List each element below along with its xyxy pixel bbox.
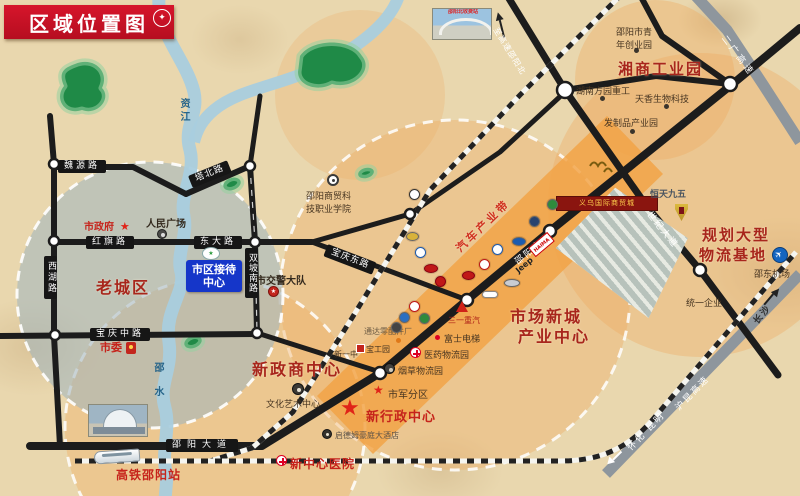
airport-icon: ✈ bbox=[772, 247, 788, 263]
poi-gaotie: 高铁邵阳站 bbox=[116, 466, 181, 483]
project-name: 义乌国际商贸城 bbox=[579, 199, 635, 207]
baogong-icon bbox=[356, 344, 365, 353]
poi-tianxiang: 天香生物科技 bbox=[635, 92, 689, 105]
renmin-icon bbox=[157, 229, 167, 239]
poi-chuangye-dot bbox=[634, 48, 639, 53]
road-label-shaoyang-dadao: 邵阳大道 bbox=[166, 439, 238, 452]
area-wuliu-line1: 规划大型 bbox=[702, 224, 770, 245]
poi-yiyao: 医药物流园 bbox=[424, 348, 469, 361]
poi-jiaojing: 市交警大队 bbox=[256, 272, 306, 287]
junfenqu-star-icon: ★ bbox=[373, 384, 384, 396]
poi-tongda-dot bbox=[396, 338, 401, 343]
project-banner: 义乌国际商贸城 bbox=[556, 196, 658, 211]
area-laochengqu: 老城区 bbox=[96, 274, 150, 298]
car-brand-logo bbox=[479, 259, 490, 270]
poi-junfenqu: 市军分区 bbox=[388, 386, 428, 401]
poi-hospital: 新中心医院 bbox=[290, 455, 355, 472]
car-brand-logo bbox=[399, 312, 410, 323]
car-brand-logo bbox=[547, 199, 558, 210]
reception-logo-icon: ★ bbox=[202, 247, 220, 260]
yancao-icon bbox=[384, 363, 395, 374]
poi-xinyizhong: 新一中 bbox=[334, 349, 358, 360]
sany-logo-icon bbox=[456, 301, 468, 312]
map-canvas: 区域位置图 ✦ 邵阳北收费站 义乌国际商贸城 魏源路 塔北路 红旗路 东大路 西… bbox=[0, 0, 800, 496]
hotel-icon bbox=[322, 429, 332, 439]
reception-center-box: 市区接待 中心 bbox=[186, 260, 242, 292]
car-brand-logo bbox=[409, 301, 420, 312]
river-label-shaoshui: 邵水 bbox=[150, 362, 165, 410]
poi-college: 邵阳商贸科 技职业学院 bbox=[306, 189, 351, 215]
station-photo bbox=[88, 404, 148, 437]
reception-line1: 市区接待 bbox=[192, 263, 236, 276]
car-brand-logo bbox=[424, 264, 438, 273]
car-brand-logo bbox=[415, 247, 426, 258]
road-label-xihu: 西湖路 bbox=[44, 256, 57, 299]
river-label-zijiang: 资江 bbox=[176, 98, 191, 124]
compass-icon: ✦ bbox=[153, 9, 171, 27]
area-xinzhengshang: 新政商中心 bbox=[252, 356, 342, 380]
xinxingzheng-star-icon: ★ bbox=[340, 398, 360, 420]
road-label-dongda: 东大路 bbox=[194, 236, 242, 249]
toll-arch bbox=[439, 18, 492, 35]
road-to-expressway bbox=[505, 0, 565, 90]
poi-tongyi: 统一企业 bbox=[686, 296, 722, 309]
car-brand-logo bbox=[409, 189, 420, 200]
station-base bbox=[93, 427, 145, 434]
poi-baogong: 宝工园 bbox=[366, 344, 390, 355]
poi-hengtian: 恒天九五 bbox=[650, 187, 686, 200]
toll-gate-photo: 邵阳北收费站 bbox=[432, 8, 492, 40]
road-label-hongqi: 红旗路 bbox=[86, 236, 134, 249]
car-brand-logo bbox=[406, 232, 419, 241]
car-brand-logo bbox=[435, 276, 446, 287]
road-north-stub bbox=[250, 96, 260, 166]
shiwei-emblem-icon bbox=[126, 342, 136, 354]
yiyao-icon bbox=[410, 347, 421, 358]
car-brand-logo bbox=[462, 271, 475, 280]
poi-fazhipin-dot bbox=[630, 129, 635, 134]
area-shichang-line2: 产业中心 bbox=[518, 323, 590, 347]
page-title: 区域位置图 bbox=[29, 8, 149, 37]
hospital-icon bbox=[276, 455, 287, 466]
car-brand-logo bbox=[391, 322, 402, 333]
area-wuliu-line2: 物流基地 bbox=[699, 244, 767, 265]
car-brand-logo bbox=[482, 291, 498, 298]
car-brand-logo bbox=[529, 216, 540, 227]
poi-fangyuan-dot bbox=[600, 96, 605, 101]
area-xiangshang: 湘商工业园 bbox=[618, 58, 703, 79]
car-brand-logo bbox=[419, 313, 430, 324]
car-brand-logo bbox=[512, 237, 526, 246]
college-icon bbox=[327, 174, 339, 186]
poi-fushi: 富士电梯 bbox=[444, 332, 480, 345]
wenhua-icon bbox=[292, 383, 304, 395]
car-brand-logo bbox=[504, 279, 520, 287]
car-brand-logo bbox=[492, 244, 503, 255]
toll-gate-caption: 邵阳北收费站 bbox=[433, 10, 492, 16]
jiaojing-icon: ★ bbox=[268, 286, 279, 297]
poi-xinxingzheng: 新行政中心 bbox=[366, 406, 436, 425]
poi-airport: 邵东机场 bbox=[754, 267, 790, 280]
poi-shizhengfu: 市政府 ★ bbox=[84, 221, 130, 234]
poi-renmin: 人民广场 bbox=[146, 215, 186, 230]
map-title-banner: 区域位置图 ✦ bbox=[4, 5, 174, 39]
poi-sany: 三一重汽 bbox=[448, 315, 480, 326]
poi-tongda: 通达零配件厂 bbox=[364, 326, 412, 337]
reception-line2: 中心 bbox=[203, 276, 225, 289]
poi-fazhipin: 发制品产业园 bbox=[604, 116, 658, 129]
poi-shiwei: 市委 bbox=[100, 342, 122, 355]
poi-fangyuan: 湖南方园重工 bbox=[576, 84, 630, 97]
poi-chuangye: 邵阳市青 年创业园 bbox=[616, 25, 652, 51]
poi-yancao: 烟草物流园 bbox=[398, 364, 443, 377]
poi-tian-dot bbox=[664, 104, 669, 109]
poi-hotel: 启德姆豪庭大酒店 bbox=[335, 430, 399, 441]
poi-wenhua: 文化艺术中心 bbox=[266, 397, 320, 410]
fushi-dot bbox=[435, 335, 440, 340]
road-label-weiyuan: 魏源路 bbox=[58, 160, 106, 173]
road-label-baoqing-zhong: 宝庆中路 bbox=[90, 328, 150, 341]
